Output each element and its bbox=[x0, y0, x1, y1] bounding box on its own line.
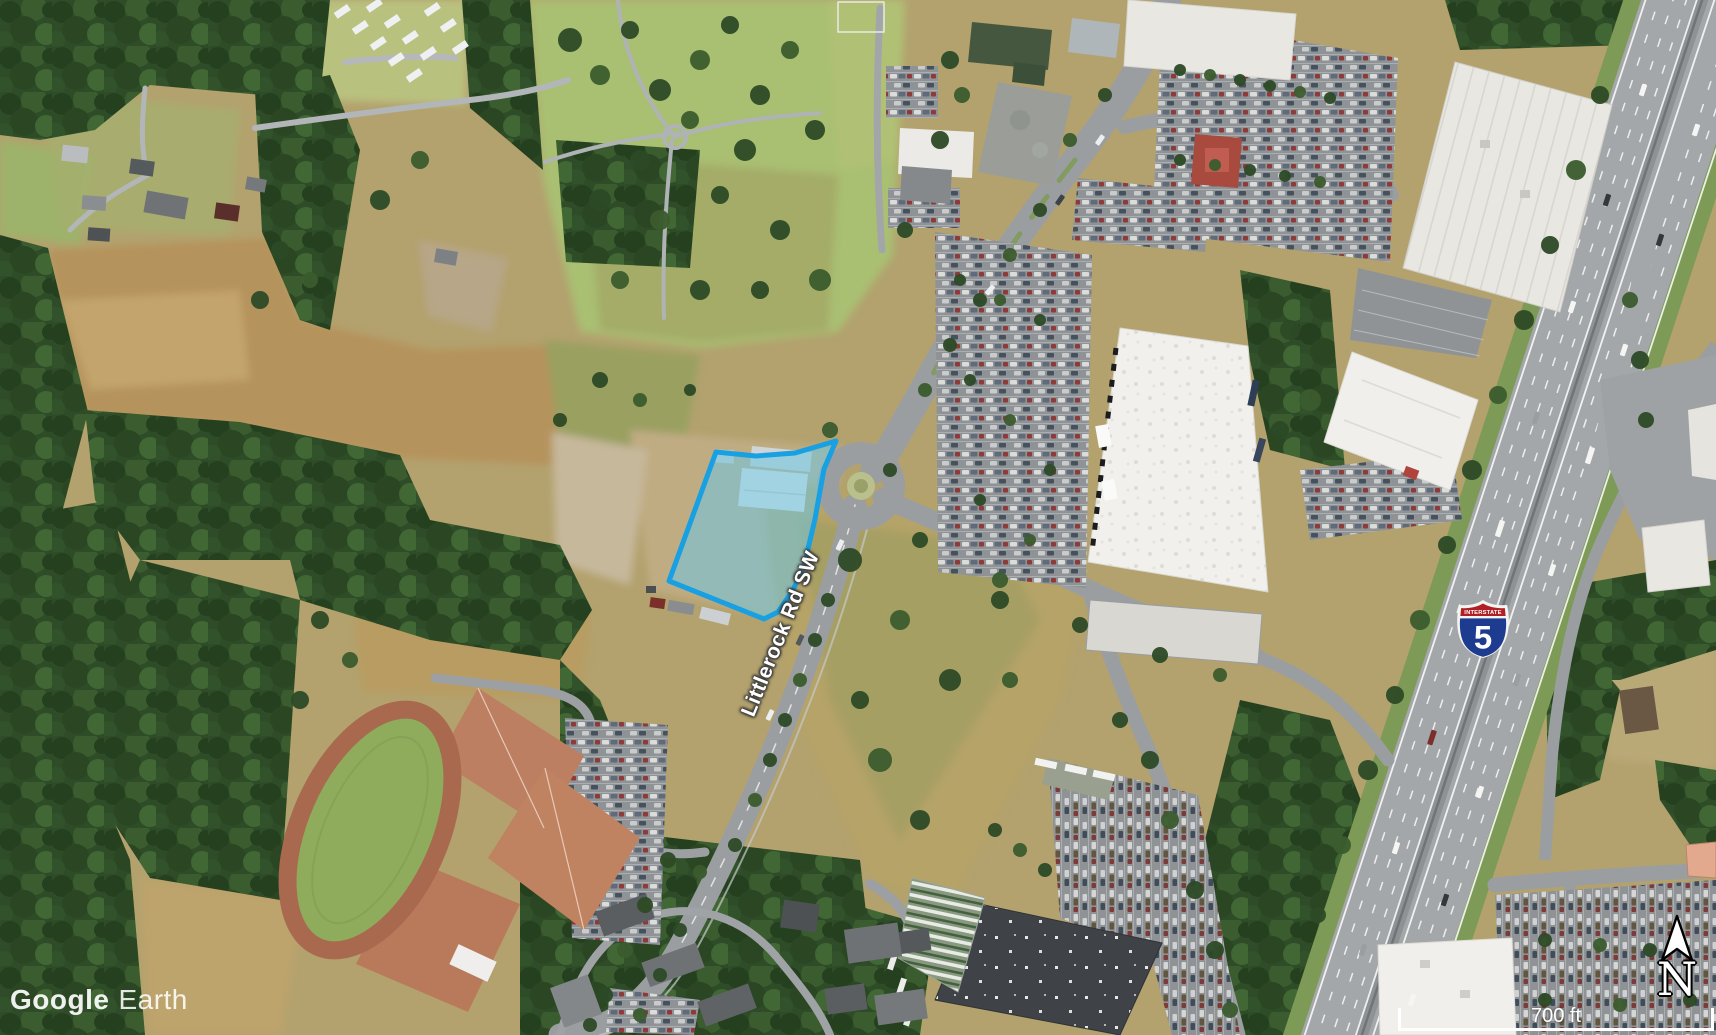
satellite-view[interactable]: Littlerock Rd SW INTERSTATE 5 N 700 ft G… bbox=[0, 0, 1716, 1035]
satellite-map-canvas[interactable] bbox=[0, 0, 1716, 1035]
roundabout bbox=[828, 453, 894, 519]
